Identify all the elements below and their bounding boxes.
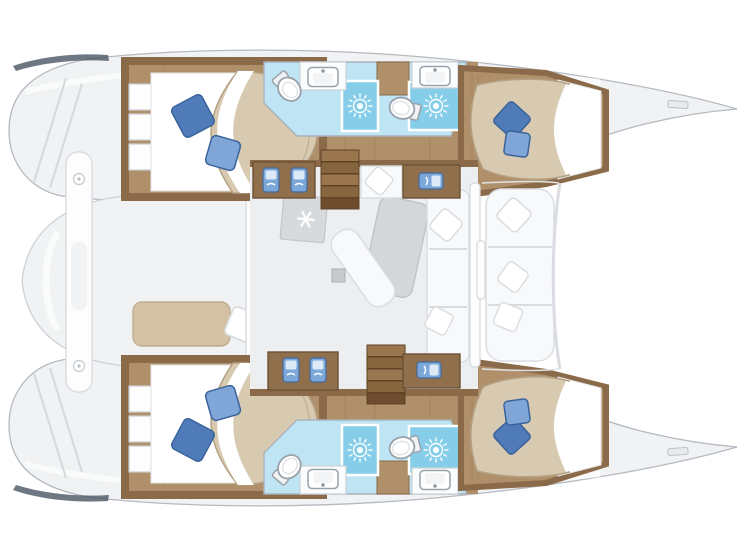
catamaran-floor-plan: Top-down interior floor plan of a four-c… bbox=[0, 0, 741, 556]
companionway-stairs-port bbox=[321, 150, 359, 209]
cockpit-bench bbox=[133, 302, 230, 346]
port-bow-cleat bbox=[668, 100, 688, 108]
forward-cockpit bbox=[482, 182, 560, 371]
saloon-sofa bbox=[424, 190, 469, 362]
cockpit-table bbox=[66, 152, 92, 392]
companionway-stairs-starboard bbox=[367, 345, 405, 404]
boat-floor-plan: Top-down interior floor plan of a four-c… bbox=[0, 0, 741, 556]
starboard-bow-cleat bbox=[668, 447, 688, 455]
saloon bbox=[250, 150, 485, 404]
galley-counter-starboard bbox=[268, 352, 338, 390]
mast-step bbox=[332, 269, 345, 282]
sliding-door-fwd bbox=[477, 241, 485, 299]
